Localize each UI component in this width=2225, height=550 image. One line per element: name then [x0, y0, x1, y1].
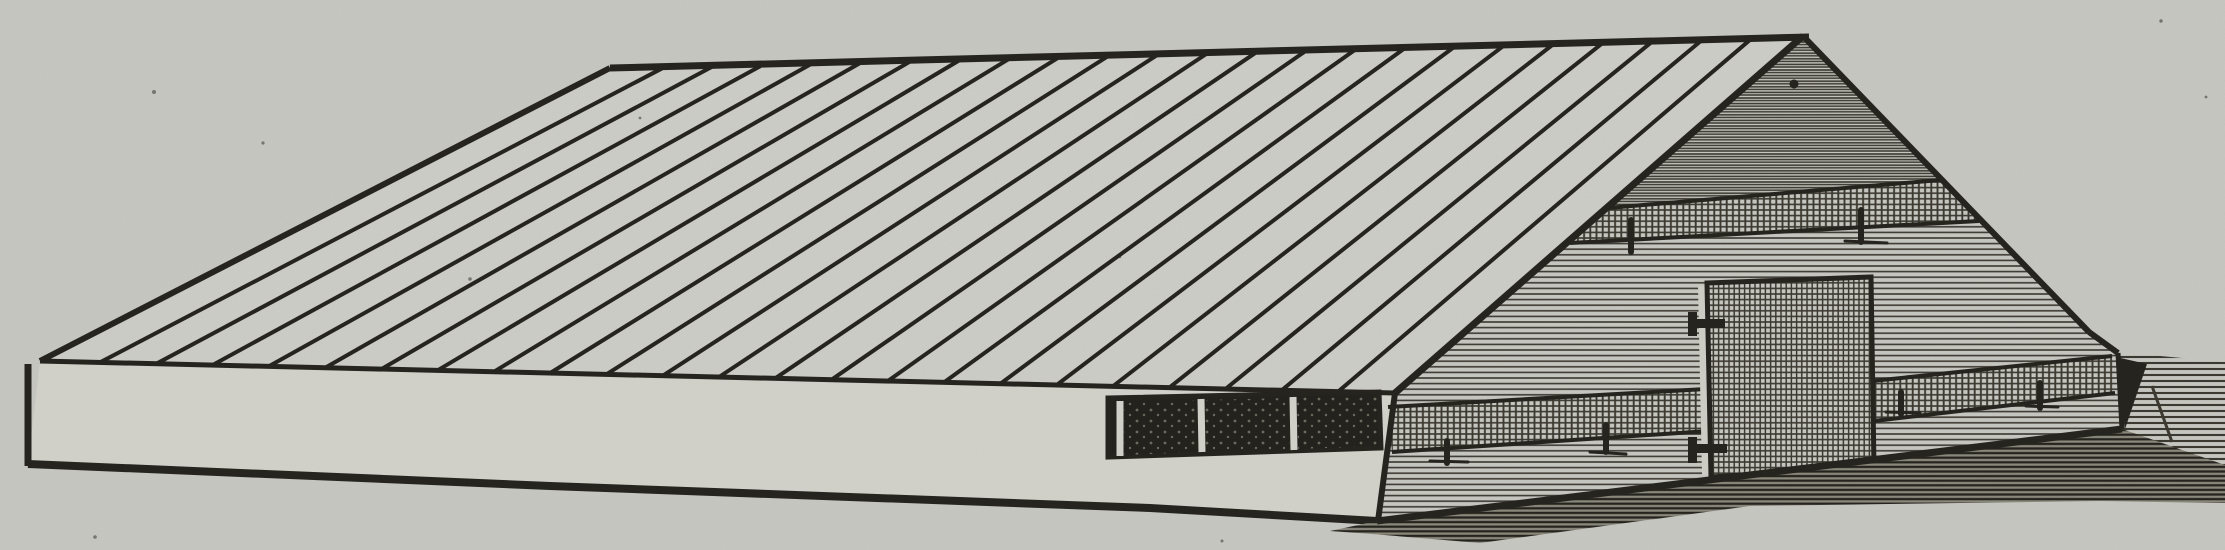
paper-grain-overlay — [0, 0, 2225, 550]
engraving-poultry-house: Vintage engraving of a long low shed-roo… — [0, 0, 2225, 550]
